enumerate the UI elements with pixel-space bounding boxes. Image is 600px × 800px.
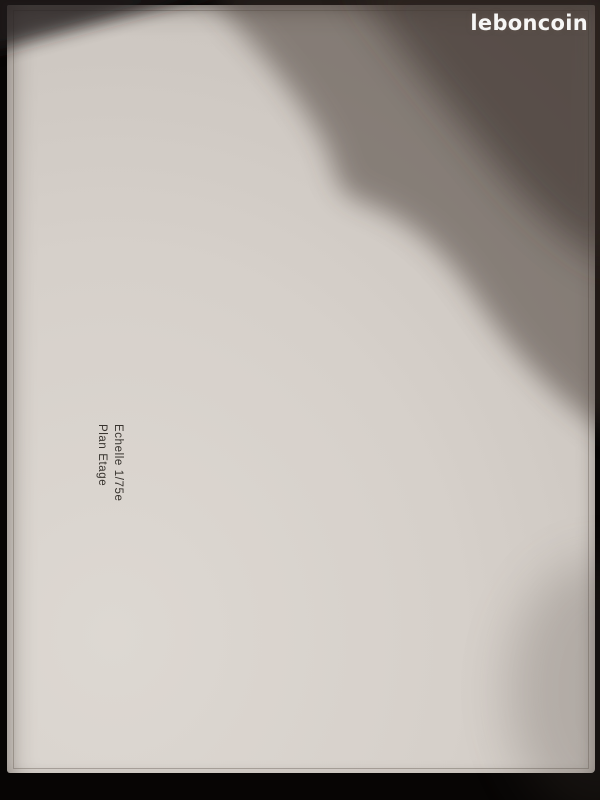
plan-title: Plan Etage bbox=[96, 424, 108, 486]
paper-sheet bbox=[7, 5, 595, 773]
plan-scale: Echelle 1/75e bbox=[112, 424, 124, 502]
leboncoin-logo: leboncoin bbox=[470, 11, 588, 35]
sheet-border bbox=[13, 10, 589, 769]
photo-of-floor-plan: Plan Etage Echelle 1/75e bbox=[0, 0, 600, 800]
